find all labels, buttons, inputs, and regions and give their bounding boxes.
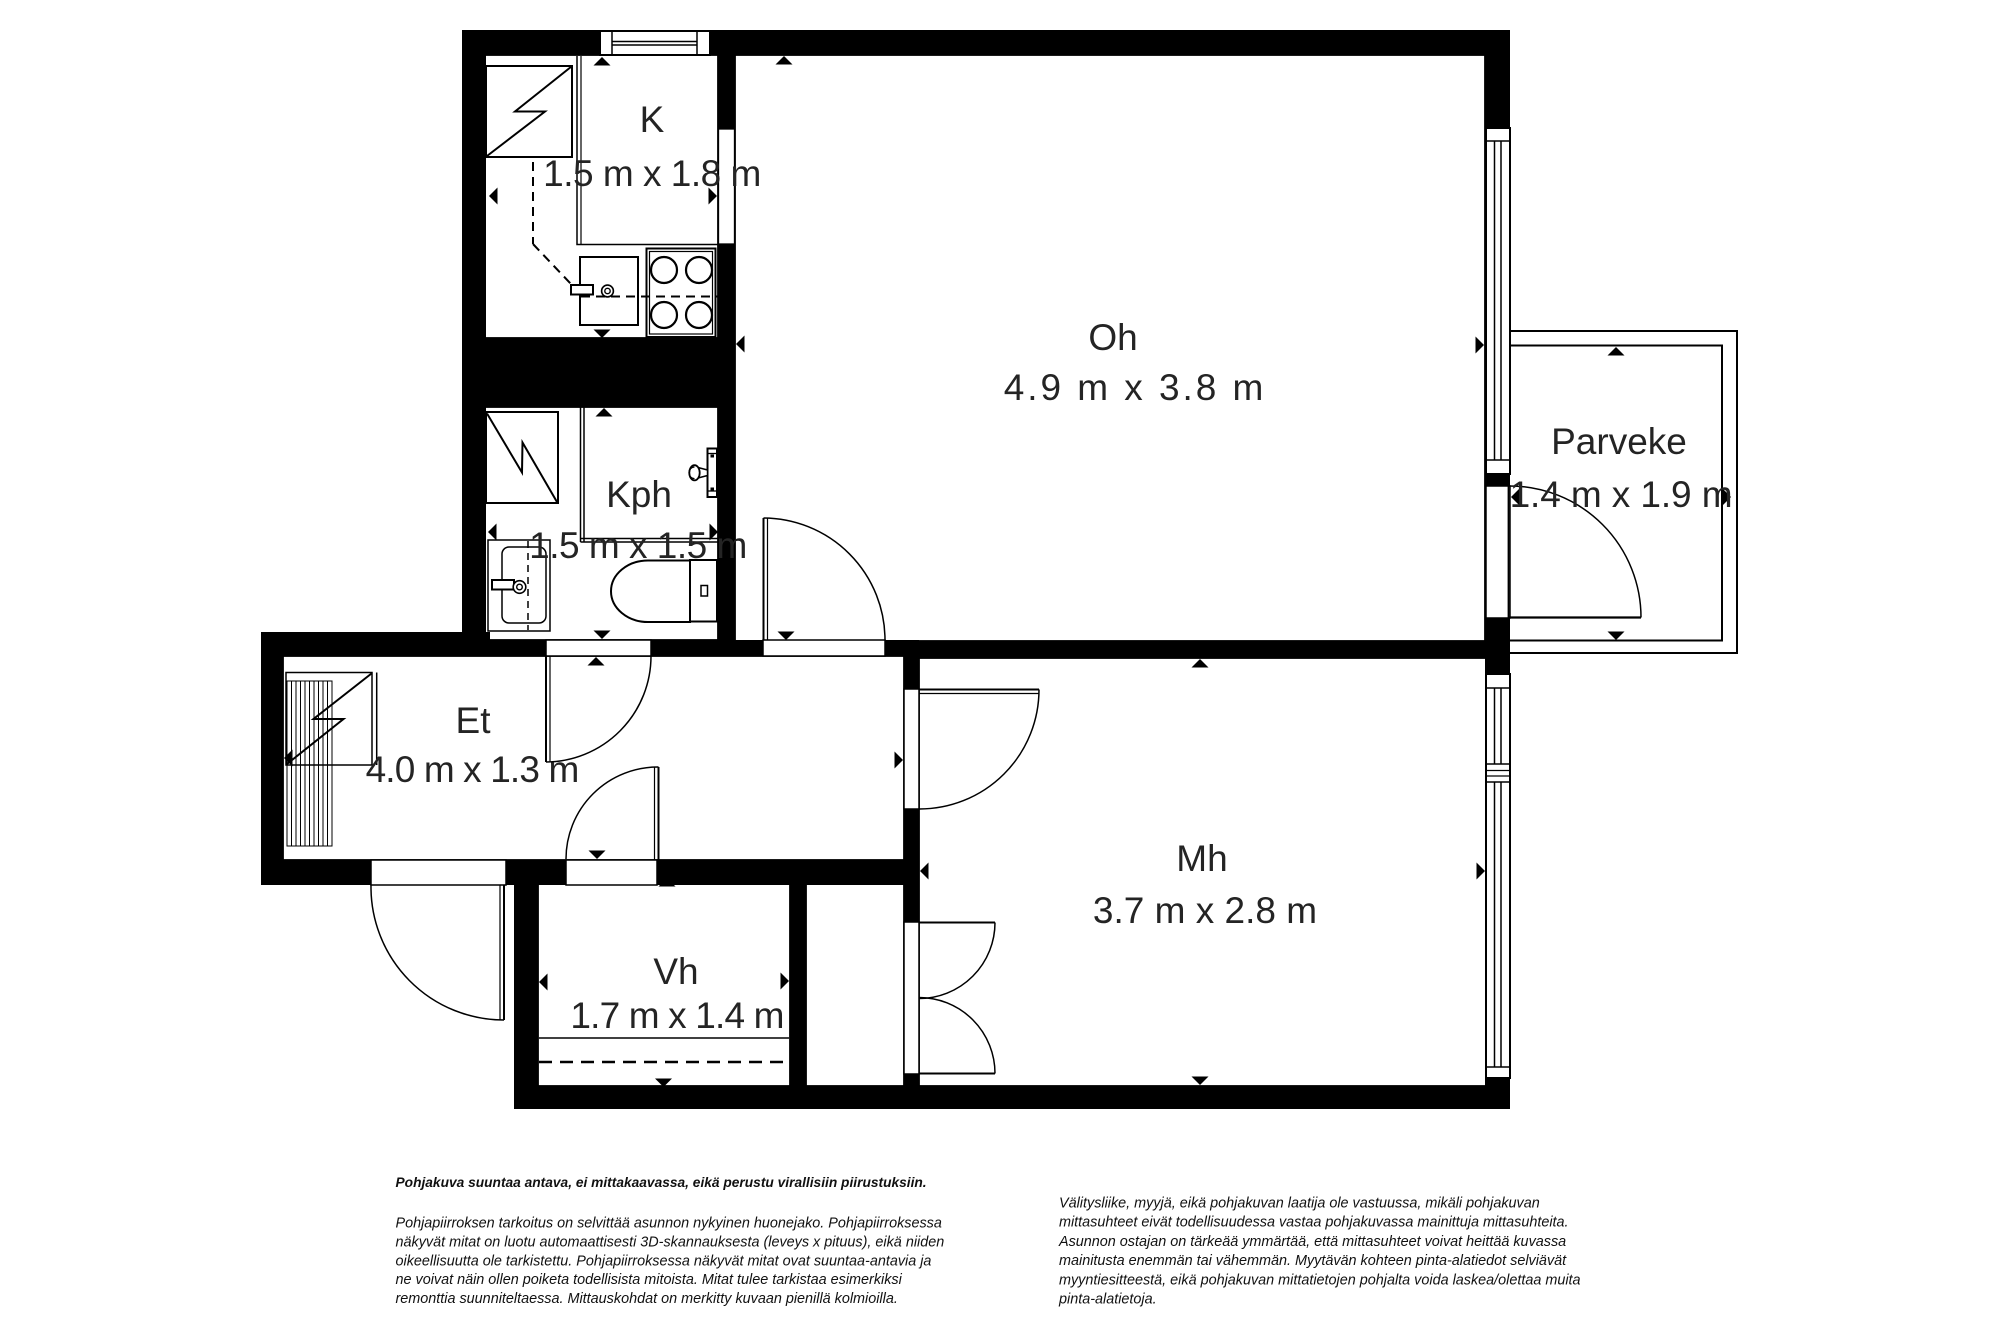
svg-text:Välitysliike, myyjä, eikä pohj: Välitysliike, myyjä, eikä pohjakuvan laa… [1059,1196,1540,1212]
svg-text:1.5 m x 1.5 m: 1.5 m x 1.5 m [529,525,747,566]
svg-text:Pohjakuva suuntaa antava, ei m: Pohjakuva suuntaa antava, ei mittakaavas… [396,1175,927,1190]
svg-text:Vh: Vh [653,951,698,992]
svg-text:1.4 m x 1.9 m: 1.4 m x 1.9 m [1510,474,1733,515]
svg-text:4.0 m x 1.3 m: 4.0 m x 1.3 m [366,749,579,790]
svg-text:remonttia suunniteltaessa. Mit: remonttia suunniteltaessa. Mittauskohdat… [396,1291,898,1307]
svg-text:Et: Et [456,700,492,741]
svg-text:1.5 m x 1.8 m: 1.5 m x 1.8 m [543,153,761,194]
svg-text:4.9 m x 3.8 m: 4.9 m x 3.8 m [1004,367,1266,408]
svg-text:Pohjapiirroksen tarkoitus on s: Pohjapiirroksen tarkoitus on selvittää a… [396,1216,942,1232]
svg-text:3.7 m x 2.8 m: 3.7 m x 2.8 m [1093,890,1317,931]
svg-text:Kph: Kph [606,474,672,515]
svg-text:ne voivat näin ollen poiketa t: ne voivat näin ollen poiketa todellisist… [396,1272,903,1288]
svg-text:K: K [640,99,665,140]
svg-text:Asunnon ostajan on tärkeää ymm: Asunnon ostajan on tärkeää ymmärtää, ett… [1058,1234,1566,1250]
svg-text:mittasuhteet eivät todellisuud: mittasuhteet eivät todellisuudessa vasta… [1059,1215,1569,1231]
svg-text:mainitusta enemmän tai vähemmä: mainitusta enemmän tai vähemmän. Myytävä… [1059,1253,1567,1269]
svg-text:myyntiesitteestä, eikä pohjaku: myyntiesitteestä, eikä pohjakuvan mittat… [1059,1272,1581,1288]
svg-text:oikeellisuutta ole tarkistettu: oikeellisuutta ole tarkistettu. Pohjapii… [396,1253,932,1269]
svg-text:pinta-alatietoja.: pinta-alatietoja. [1058,1292,1157,1308]
svg-text:Parveke: Parveke [1551,421,1687,462]
svg-text:Mh: Mh [1176,838,1227,879]
svg-text:1.7 m x 1.4 m: 1.7 m x 1.4 m [570,995,783,1036]
svg-text:Oh: Oh [1088,317,1137,358]
svg-text:näkyvät mitat on luotu automaa: näkyvät mitat on luotu automaattisesti 3… [396,1234,945,1250]
